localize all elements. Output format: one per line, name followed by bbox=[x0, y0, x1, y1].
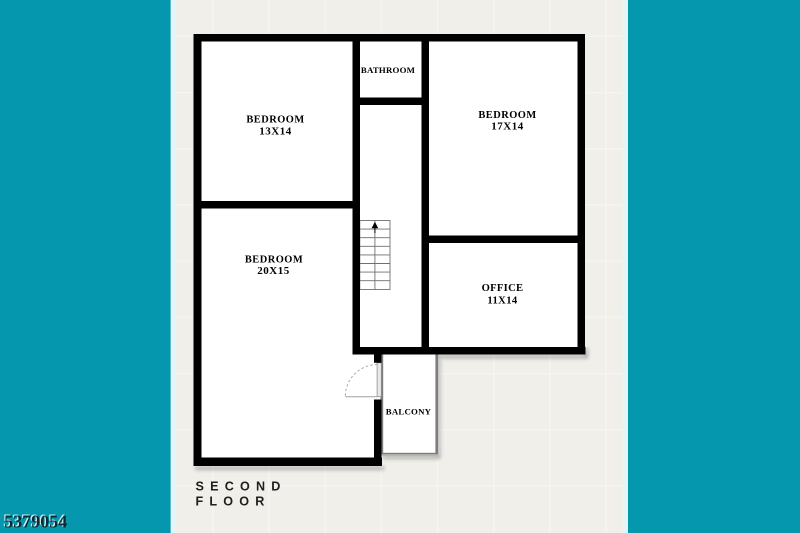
svg-text:5379054: 5379054 bbox=[4, 512, 67, 532]
svg-text:SECOND: SECOND bbox=[196, 480, 287, 494]
svg-text:BATHROOM: BATHROOM bbox=[361, 65, 416, 75]
svg-text:BEDROOM: BEDROOM bbox=[246, 115, 304, 126]
svg-text:FLOOR: FLOOR bbox=[196, 495, 271, 509]
svg-text:11X14: 11X14 bbox=[487, 295, 518, 306]
svg-text:OFFICE: OFFICE bbox=[482, 283, 524, 294]
svg-text:BALCONY: BALCONY bbox=[386, 406, 432, 416]
svg-text:BEDROOM: BEDROOM bbox=[245, 255, 303, 266]
svg-text:17X14: 17X14 bbox=[491, 121, 523, 133]
svg-text:13X14: 13X14 bbox=[259, 125, 291, 137]
svg-text:20X15: 20X15 bbox=[257, 265, 289, 277]
svg-text:BEDROOM: BEDROOM bbox=[478, 110, 536, 121]
